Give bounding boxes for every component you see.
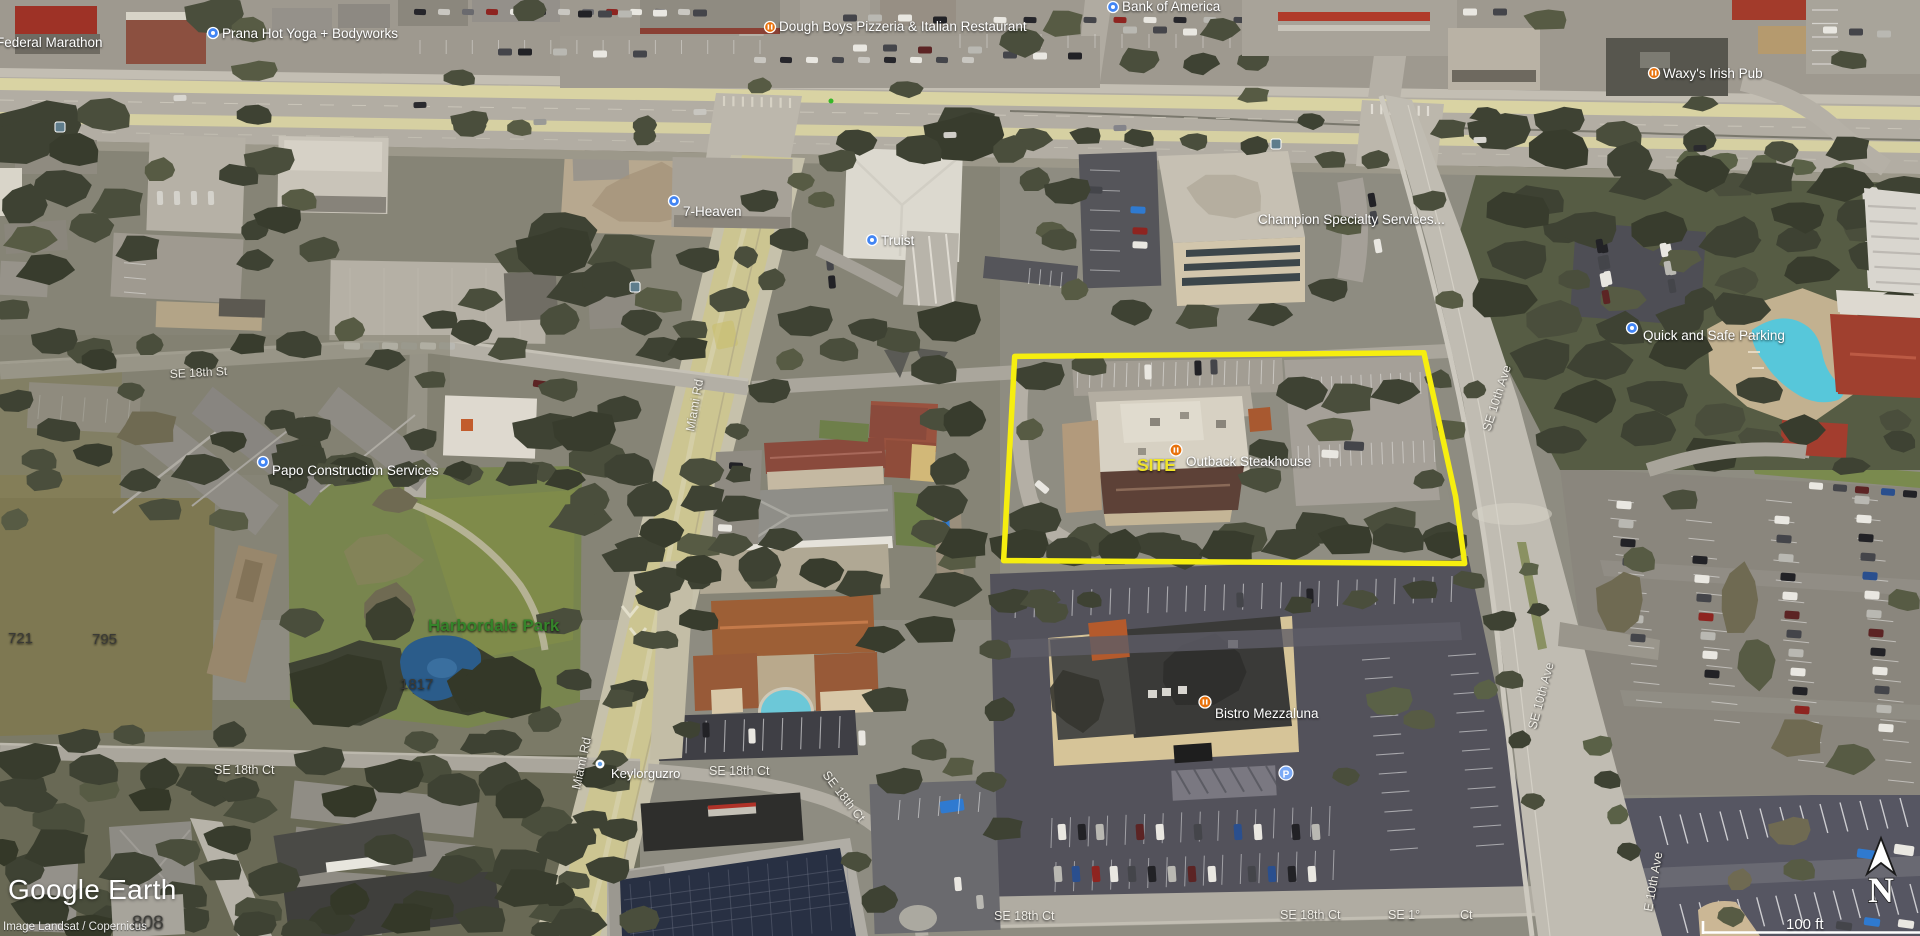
svg-text:Dough Boys Pizzeria & Italian: Dough Boys Pizzeria & Italian Restaurant [779,19,1027,34]
svg-text:Keylorguzro: Keylorguzro [611,766,680,781]
svg-text:Image Landsat / Copernicus: Image Landsat / Copernicus [3,921,147,933]
svg-text:Champion Specialty Services...: Champion Specialty Services... [1258,212,1445,227]
svg-text:Prana Hot Yoga + Bodyworks: Prana Hot Yoga + Bodyworks [222,26,398,41]
svg-text:Quick and Safe Parking: Quick and Safe Parking [1643,328,1785,343]
svg-text:N: N [1868,870,1894,910]
svg-text:SE 18th Ct: SE 18th Ct [994,909,1055,923]
svg-text:SITE: SITE [1137,455,1176,475]
svg-text:Harbordale Park: Harbordale Park [428,616,560,635]
svg-text:Bank of America: Bank of America [1122,0,1221,14]
svg-text:7-Heaven: 7-Heaven [683,204,742,219]
svg-text:SE 18th Ct: SE 18th Ct [1280,908,1341,922]
svg-text:P: P [1283,770,1290,781]
svg-text:SE 1°: SE 1° [1388,908,1420,922]
svg-text:100 ft: 100 ft [1786,916,1824,933]
svg-text:SE 18th Ct: SE 18th Ct [709,764,770,778]
svg-text:795: 795 [92,631,117,648]
svg-text:721: 721 [8,630,33,647]
svg-text:Outback Steakhouse: Outback Steakhouse [1186,454,1311,469]
svg-text:Bistro Mezzaluna: Bistro Mezzaluna [1215,706,1319,721]
svg-text:Google Earth: Google Earth [8,874,177,905]
svg-text:Waxy's Irish Pub: Waxy's Irish Pub [1663,66,1763,81]
svg-text:SE 18th Ct: SE 18th Ct [214,763,275,777]
svg-text:Truist: Truist [881,233,914,248]
svg-text:Ct: Ct [1460,908,1473,922]
svg-text:Papo Construction Services: Papo Construction Services [272,463,439,478]
svg-text:Federal Marathon: Federal Marathon [0,35,103,50]
svg-text:1817: 1817 [400,676,433,693]
